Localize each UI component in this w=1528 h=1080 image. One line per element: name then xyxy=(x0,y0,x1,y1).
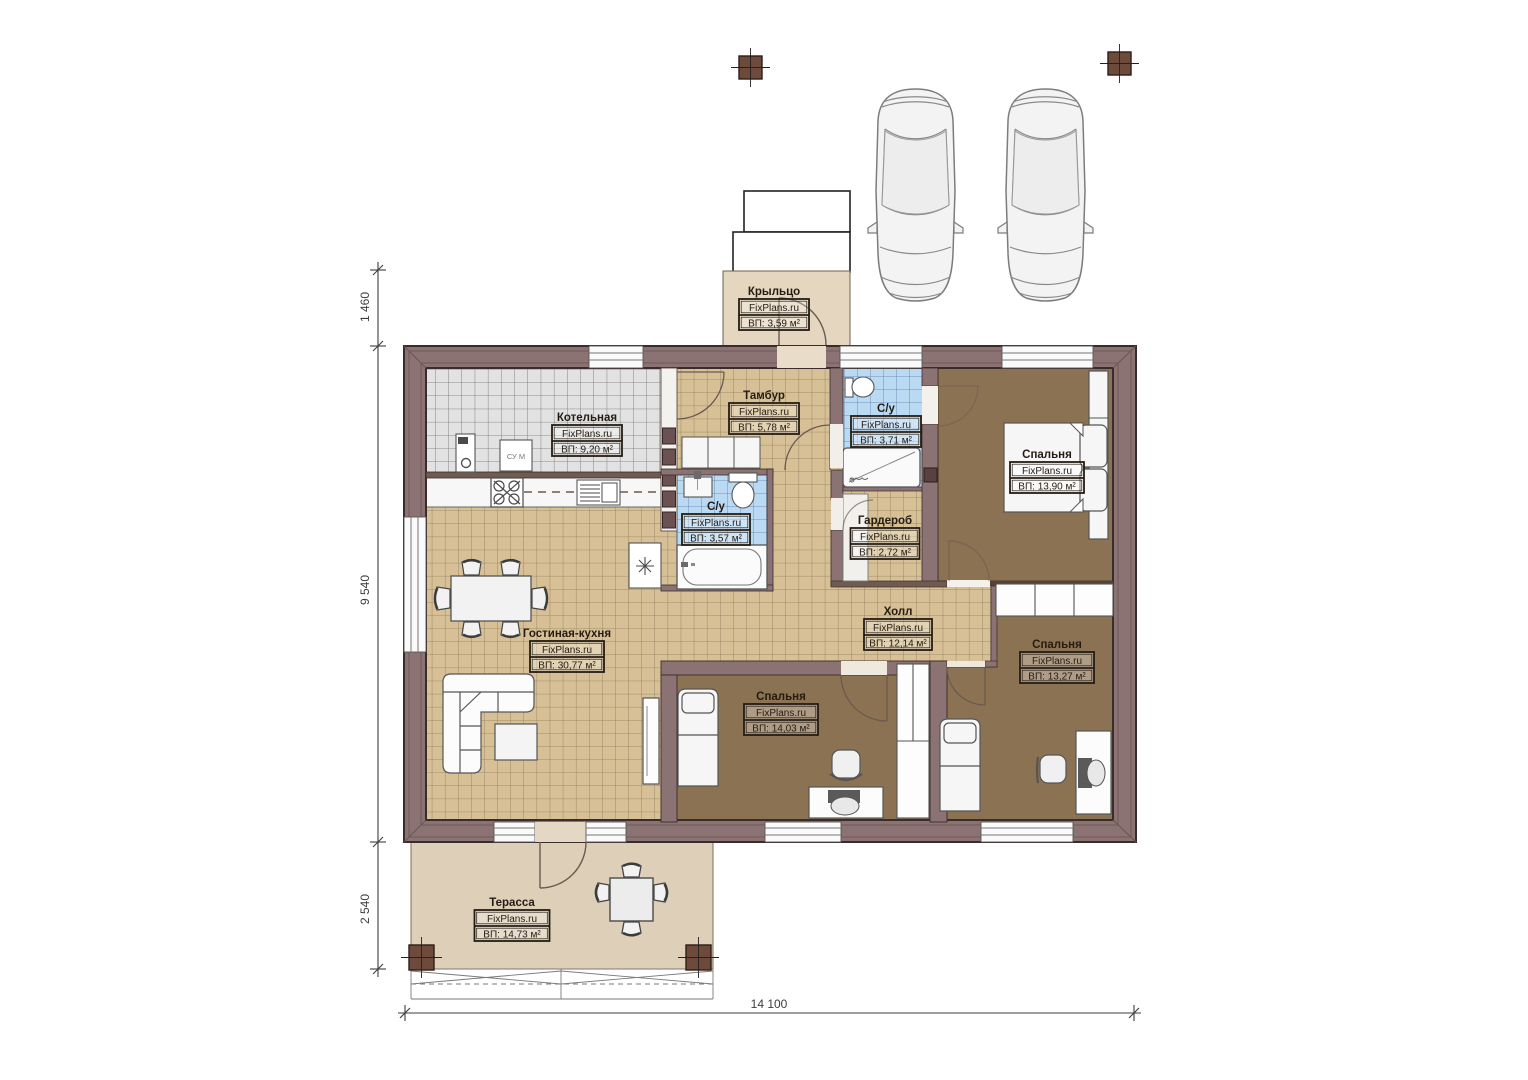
svg-text:ВП: 13,90 м²: ВП: 13,90 м² xyxy=(1018,482,1076,493)
svg-text:14 100: 14 100 xyxy=(751,997,788,1011)
svg-text:FixPlans.ru: FixPlans.ru xyxy=(861,420,911,431)
svg-text:Спальня: Спальня xyxy=(1032,639,1082,651)
svg-text:ВП: 13,27 м²: ВП: 13,27 м² xyxy=(1028,672,1086,683)
svg-text:Холл: Холл xyxy=(884,606,913,618)
svg-text:Терасса: Терасса xyxy=(489,897,535,909)
svg-text:FixPlans.ru: FixPlans.ru xyxy=(1032,656,1082,667)
svg-text:FixPlans.ru: FixPlans.ru xyxy=(756,708,806,719)
svg-text:1 460: 1 460 xyxy=(358,292,372,322)
svg-text:ВП: 3,57 м²: ВП: 3,57 м² xyxy=(690,534,743,545)
svg-text:2 540: 2 540 xyxy=(358,894,372,924)
svg-text:СУ М: СУ М xyxy=(507,452,525,461)
svg-text:Котельная: Котельная xyxy=(557,412,617,424)
svg-text:FixPlans.ru: FixPlans.ru xyxy=(487,914,537,925)
svg-text:FixPlans.ru: FixPlans.ru xyxy=(873,623,923,634)
svg-text:ВП: 3,71 м²: ВП: 3,71 м² xyxy=(860,436,913,447)
svg-text:ВП: 5,78 м²: ВП: 5,78 м² xyxy=(738,423,791,434)
svg-text:ВП: 2,72 м²: ВП: 2,72 м² xyxy=(859,548,912,559)
svg-text:FixPlans.ru: FixPlans.ru xyxy=(691,518,741,529)
svg-text:С/у: С/у xyxy=(707,501,726,513)
svg-text:С/у: С/у xyxy=(877,403,896,415)
svg-text:Крыльцо: Крыльцо xyxy=(748,286,800,298)
svg-text:Спальня: Спальня xyxy=(756,691,806,703)
svg-text:Гостиная-кухня: Гостиная-кухня xyxy=(523,628,611,640)
svg-text:FixPlans.ru: FixPlans.ru xyxy=(749,303,799,314)
svg-text:FixPlans.ru: FixPlans.ru xyxy=(860,532,910,543)
svg-text:9 540: 9 540 xyxy=(358,575,372,605)
svg-text:FixPlans.ru: FixPlans.ru xyxy=(1022,466,1072,477)
svg-text:Тамбур: Тамбур xyxy=(743,390,785,402)
svg-text:ВП: 3,59 м²: ВП: 3,59 м² xyxy=(748,319,801,330)
svg-text:FixPlans.ru: FixPlans.ru xyxy=(562,429,612,440)
svg-text:ВП: 9,20 м²: ВП: 9,20 м² xyxy=(561,445,614,456)
svg-text:FixPlans.ru: FixPlans.ru xyxy=(739,407,789,418)
svg-text:FixPlans.ru: FixPlans.ru xyxy=(542,645,592,656)
svg-text:Гардероб: Гардероб xyxy=(858,515,912,527)
svg-text:Спальня: Спальня xyxy=(1022,449,1072,461)
svg-text:ВП: 14,73 м²: ВП: 14,73 м² xyxy=(483,930,541,941)
svg-text:ВП: 12,14 м²: ВП: 12,14 м² xyxy=(869,639,927,650)
svg-text:ВП: 30,77 м²: ВП: 30,77 м² xyxy=(538,661,596,672)
svg-text:ВП: 14,03 м²: ВП: 14,03 м² xyxy=(752,724,810,735)
